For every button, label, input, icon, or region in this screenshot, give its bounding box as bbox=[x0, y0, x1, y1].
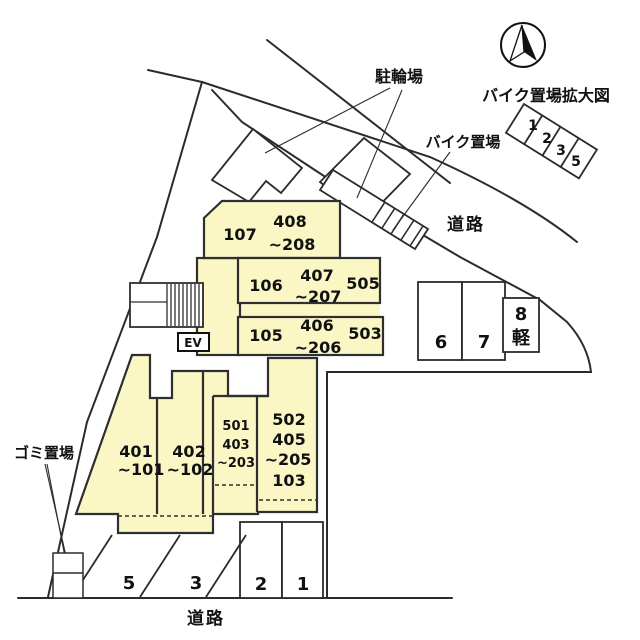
unit-105: 105 bbox=[249, 326, 282, 345]
bike-space-3: 3 bbox=[556, 143, 566, 159]
unit-406: 406 bbox=[300, 316, 333, 335]
unit-405: 405 bbox=[272, 430, 305, 449]
garbage-area-label: ゴミ置場 bbox=[14, 444, 74, 462]
garbage-box bbox=[53, 553, 83, 598]
unit-401: 401 bbox=[119, 442, 152, 461]
road-label-top: 道路 bbox=[447, 214, 485, 235]
parking-label-5: 5 bbox=[123, 573, 136, 594]
parking-label-6: 6 bbox=[435, 332, 448, 353]
unit-208: ~208 bbox=[269, 235, 316, 254]
unit-205: ~205 bbox=[265, 450, 312, 469]
bike-space-1: 1 bbox=[528, 118, 538, 134]
parking-label-8: 8 bbox=[515, 304, 528, 325]
unit-101: ~101 bbox=[118, 460, 165, 479]
unit-505: 505 bbox=[346, 274, 379, 293]
parking-label-2: 2 bbox=[255, 574, 268, 595]
bike-space-2: 2 bbox=[542, 131, 552, 147]
leader-bike-parking bbox=[393, 152, 450, 230]
unit-402: 402 bbox=[172, 442, 205, 461]
bike-parking-label: バイク置場 bbox=[426, 133, 501, 151]
parking-label-1: 1 bbox=[297, 574, 310, 595]
parking-label-3: 3 bbox=[190, 573, 203, 594]
unit-107: 107 bbox=[223, 225, 256, 244]
unit-408: 408 bbox=[273, 212, 306, 231]
bike-space-5: 5 bbox=[571, 154, 581, 170]
unit-207: ~207 bbox=[295, 287, 342, 306]
parking-slant-dividers bbox=[72, 535, 246, 597]
bicycle-shelter-structure bbox=[212, 129, 302, 202]
unit-502: 502 bbox=[272, 410, 305, 429]
unit-102: ~102 bbox=[167, 460, 214, 479]
unit-103: 103 bbox=[272, 471, 305, 490]
road-label-bottom: 道路 bbox=[187, 608, 225, 629]
unit-407: 407 bbox=[300, 266, 333, 285]
elevator-label: EV bbox=[184, 336, 202, 350]
unit-203: ~203 bbox=[217, 456, 255, 471]
parking-label-7: 7 bbox=[478, 332, 491, 353]
unit-503: 503 bbox=[348, 324, 381, 343]
unit-501: 501 bbox=[222, 419, 249, 434]
bicycle-parking-label: 駐輪場 bbox=[375, 67, 423, 86]
unit-403: 403 bbox=[222, 438, 249, 453]
unit-206: ~206 bbox=[295, 338, 342, 357]
site-plan-diagram: EV 1 2 3 5 駐輪場 バイク置場 バイク置場拡大図 道路 道路 ゴミ置場… bbox=[0, 0, 640, 640]
unit-106: 106 bbox=[249, 276, 282, 295]
site-boundary-top-segment bbox=[148, 70, 202, 82]
parking-label-8-light: 軽 bbox=[512, 327, 531, 349]
north-arrow-icon bbox=[501, 23, 545, 67]
bike-parking-enlarged-label: バイク置場拡大図 bbox=[482, 86, 610, 105]
